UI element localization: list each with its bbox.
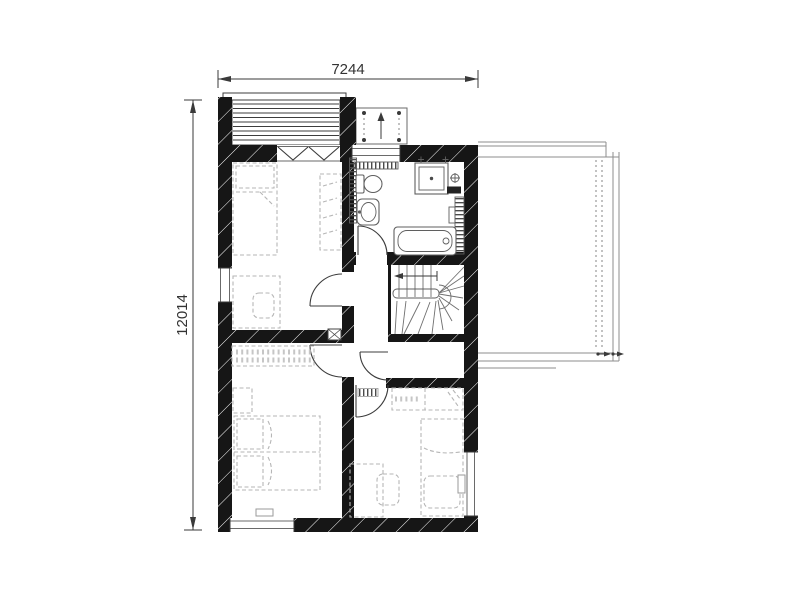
wall-top — [218, 145, 478, 162]
drain-arrow — [596, 352, 611, 357]
desk-with-chair — [350, 464, 399, 517]
radiator-under-window — [354, 162, 398, 169]
toilet — [356, 175, 382, 193]
duct-symbol — [328, 329, 341, 340]
roof-terrace — [478, 142, 624, 368]
window-sill-object — [458, 475, 465, 493]
washbasin — [357, 199, 379, 225]
canopy — [356, 108, 407, 144]
canopy-post — [362, 111, 366, 115]
bedroom-bottom-right — [350, 388, 465, 517]
shower-cabin — [415, 157, 449, 195]
bathtub — [394, 227, 456, 255]
wall-storage-bottom — [386, 378, 464, 388]
wardrobe — [392, 388, 463, 410]
desk-with-chair — [233, 276, 280, 328]
canopy-post — [397, 111, 401, 115]
canopy-post — [362, 138, 366, 142]
wall-stair-stringer — [388, 265, 391, 334]
wardrobe — [320, 174, 341, 250]
dimension-left: 12014 — [174, 100, 202, 530]
floor-plan-canvas: 7244 12014 — [0, 0, 800, 600]
up-arrow-icon — [378, 112, 385, 139]
winder-staircase — [393, 265, 464, 334]
door-bathroom — [358, 226, 387, 255]
canopy-post — [397, 138, 401, 142]
floor-plan-drawing: 7244 12014 — [0, 0, 800, 600]
wall-bedrooms-divider — [232, 330, 342, 343]
dimension-top: 7244 — [218, 61, 478, 88]
wall-loggia-right — [340, 97, 356, 145]
dimension-arrow-right — [465, 76, 478, 82]
shower-valve — [447, 173, 461, 194]
door-bedroom-bottom-left — [310, 345, 342, 377]
door-storage — [360, 352, 388, 380]
dimension-width-label: 7244 — [331, 61, 364, 78]
window-sill-object — [256, 509, 273, 516]
cabinet — [233, 388, 252, 413]
bedroom-bottom-left — [232, 346, 320, 516]
dimension-arrow-up — [190, 100, 196, 113]
dimension-arrow-down — [190, 517, 196, 530]
door-bedroom-top-left — [310, 274, 342, 306]
single-bed — [421, 419, 463, 516]
loggia-deck-slats — [233, 104, 339, 140]
dimension-arrow-left — [218, 76, 231, 82]
double-bed — [234, 416, 320, 490]
wardrobe — [232, 346, 314, 366]
bathroom — [350, 157, 465, 256]
dimension-height-label: 12014 — [174, 294, 191, 336]
winder-treads — [395, 267, 464, 334]
loggia — [223, 93, 346, 145]
single-bed — [233, 163, 277, 255]
wall-storage-top — [388, 334, 464, 342]
wall-left — [218, 97, 232, 532]
bedroom-top-left — [233, 163, 341, 328]
threshold-hatch — [358, 389, 378, 397]
